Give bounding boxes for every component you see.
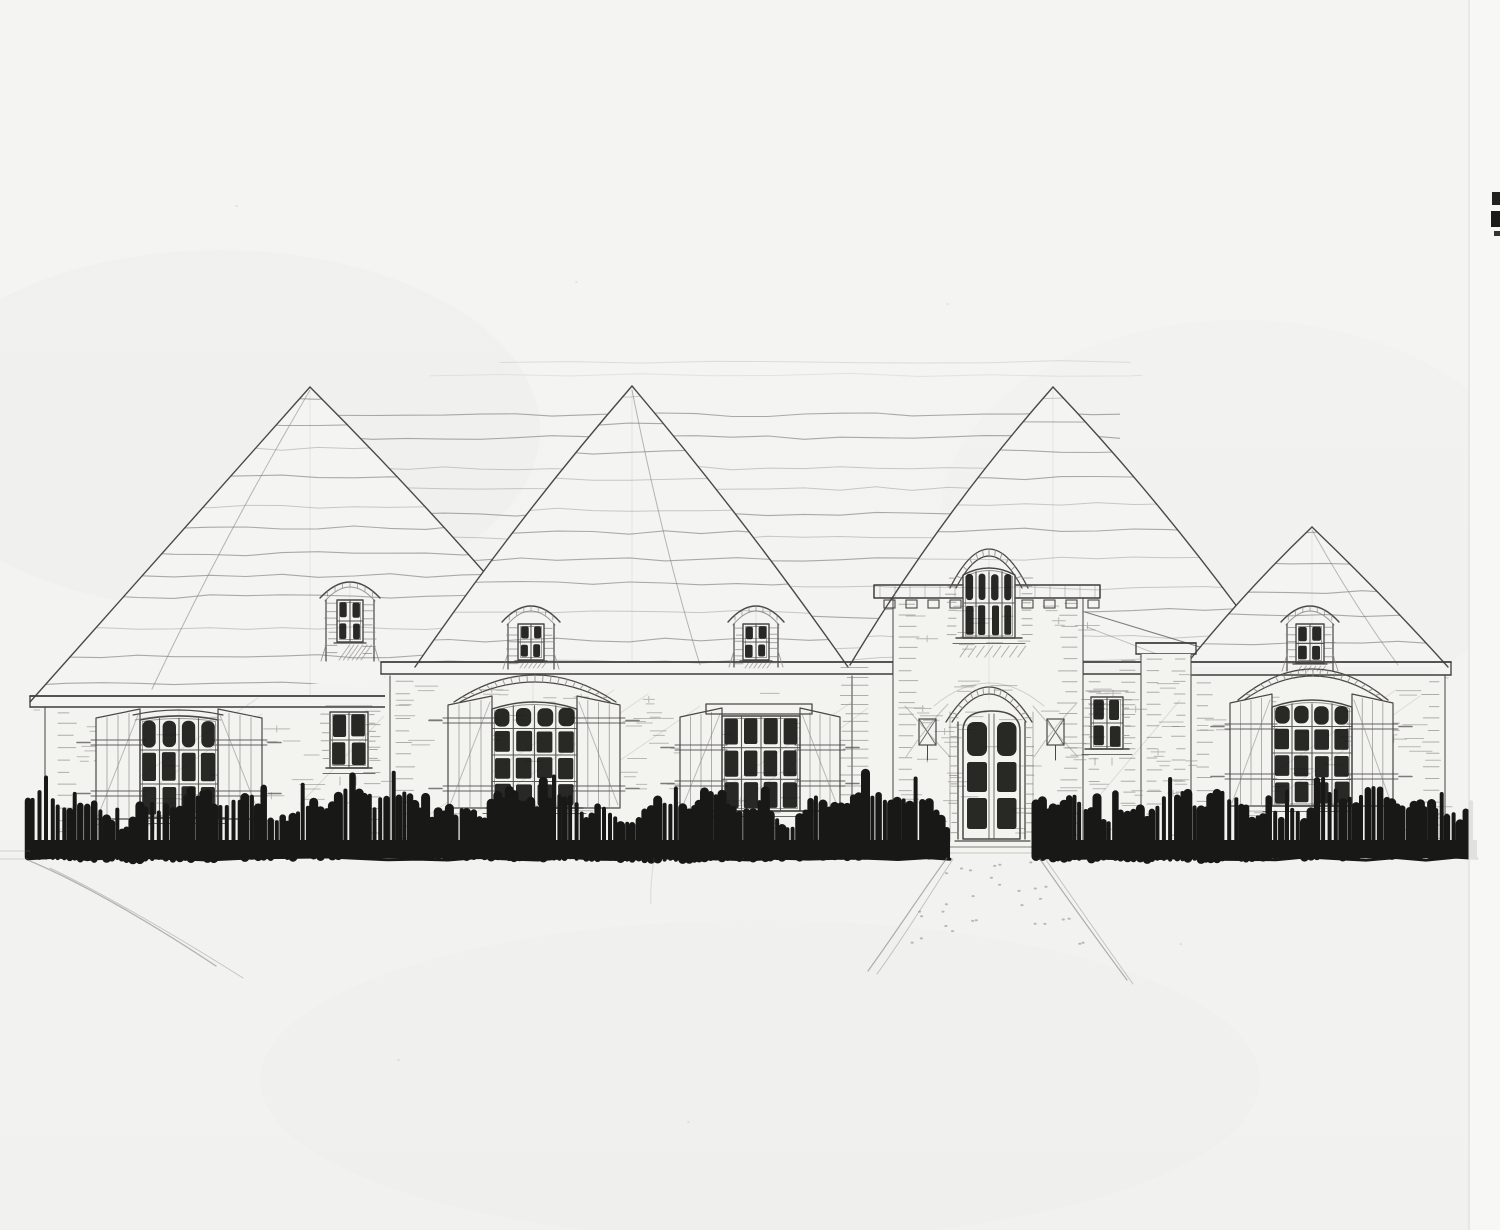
window-pane [340,602,347,617]
window-pane [537,757,552,778]
window-sash [330,712,368,768]
window-pane [784,718,798,744]
edge-mark [1491,211,1500,227]
window-pane [353,624,360,640]
window-pane [1312,646,1320,660]
window-pane [521,626,529,638]
window-pane [1298,627,1306,641]
window-pane [758,645,765,657]
edge-mark [1494,231,1500,236]
window-pane [534,626,541,638]
window-pane [1294,706,1309,724]
window-pane [1275,755,1290,776]
window-pane [1109,700,1119,720]
window-pane [966,606,974,635]
window-pane [351,714,365,736]
window-sash [492,702,577,808]
window-pane [764,718,778,744]
dormer-window [337,600,363,642]
window-pane [1334,729,1348,750]
window-pane [333,715,346,737]
window-pane [1335,706,1349,725]
paper-tone [260,920,1260,1230]
window-pane [521,645,528,657]
window-pane [1315,756,1329,777]
window-pane [353,603,360,618]
door-lite [967,798,987,829]
window-pane [764,751,778,777]
window-pane [182,753,196,781]
window-sash [1091,697,1123,749]
window-pane [978,605,985,635]
window-pane [725,751,739,777]
window-pane [725,719,738,745]
window-pane [182,721,195,748]
door-lite [967,762,987,792]
window-pane [744,751,757,777]
window-pane [745,645,753,658]
window-pane [1094,725,1104,745]
edge-mark [1492,192,1500,205]
window-pane [332,742,345,765]
window-pane [1298,646,1307,660]
dormer-window [518,624,544,660]
window-pane [992,606,999,636]
window-pane [1294,756,1308,777]
window-pane [759,626,767,639]
window-pane [339,623,346,639]
door-lite [997,722,1017,756]
window-pane [352,743,366,766]
window-pane [537,732,553,753]
tower-window-sash [963,568,1015,638]
window-pane [1295,782,1309,802]
window-pane [495,731,510,752]
window-pane [783,782,797,808]
door-lite [997,798,1017,829]
window-pane [494,709,509,727]
drawing-sheet: Hand-drawn architectural front elevation… [0,0,1500,1230]
window-pane [1110,726,1120,747]
window-pane [516,708,531,726]
window-pane [966,574,973,600]
window-pane [744,718,757,744]
window-pane [142,721,155,748]
window-pane [162,752,176,781]
window-pane [558,731,573,752]
window-pane [744,782,758,808]
window-pane [1334,756,1349,777]
window-pane [1004,574,1011,600]
window-pane [201,721,215,747]
window-pane [991,574,998,600]
window-pane [1094,700,1104,720]
window-pane [537,708,553,726]
window-pane [142,753,156,781]
elevation-sketch [0,0,1500,1230]
window-pane [495,758,510,779]
window-sash [1272,700,1352,806]
window-pane [1004,605,1011,635]
paper-edge [1469,0,1500,1230]
window-pane [201,753,215,781]
door-lite [967,722,987,756]
window-pane [1312,627,1321,641]
window-pane [1275,729,1289,749]
window-pane [1295,730,1310,751]
window-pane [516,758,532,779]
door-lite [997,762,1017,792]
window-pane [559,708,575,727]
window-pane [1314,729,1329,749]
window-pane [979,574,986,600]
window-pane [783,750,796,776]
dormer-window [1296,624,1324,663]
window-pane [533,644,540,657]
window-pane [163,721,176,747]
window-pane [516,731,532,752]
window-pane [746,627,753,640]
window-pane [1275,706,1290,724]
paper-edge-strip [1469,0,1500,1230]
window-pane [1314,706,1329,724]
window-pane [558,758,573,779]
